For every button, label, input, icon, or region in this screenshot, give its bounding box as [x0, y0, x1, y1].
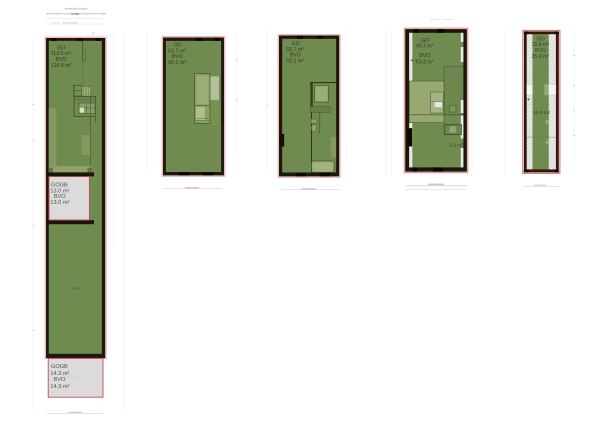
- svg-text:13.0 m²: 13.0 m²: [50, 200, 69, 206]
- svg-text:BVO: BVO: [419, 53, 430, 59]
- svg-text:59.2 m²: 59.2 m²: [286, 58, 304, 64]
- svg-text:15.6 m2: 15.6 m2: [533, 110, 550, 115]
- svg-text:BVO: BVO: [54, 377, 66, 383]
- svg-text:60.1 m²: 60.1 m²: [168, 60, 186, 66]
- svg-text:GOGB: GOGB: [51, 364, 68, 370]
- svg-text:63.3 m²: 63.3 m²: [416, 59, 434, 65]
- svg-text:124.8 m²: 124.8 m²: [51, 63, 72, 69]
- svg-text:6.010: 6.010: [71, 12, 79, 16]
- svg-text:35.0 m²: 35.0 m²: [532, 54, 550, 60]
- svg-text:49.7 m²: 49.7 m²: [416, 44, 434, 50]
- svg-text:bestaande situatie: bestaande situatie: [65, 7, 88, 11]
- svg-text:14.3 m²: 14.3 m²: [50, 371, 69, 377]
- svg-text:5.2 m2: 5.2 m2: [450, 142, 464, 147]
- svg-text:14.3 m²: 14.3 m²: [50, 384, 69, 390]
